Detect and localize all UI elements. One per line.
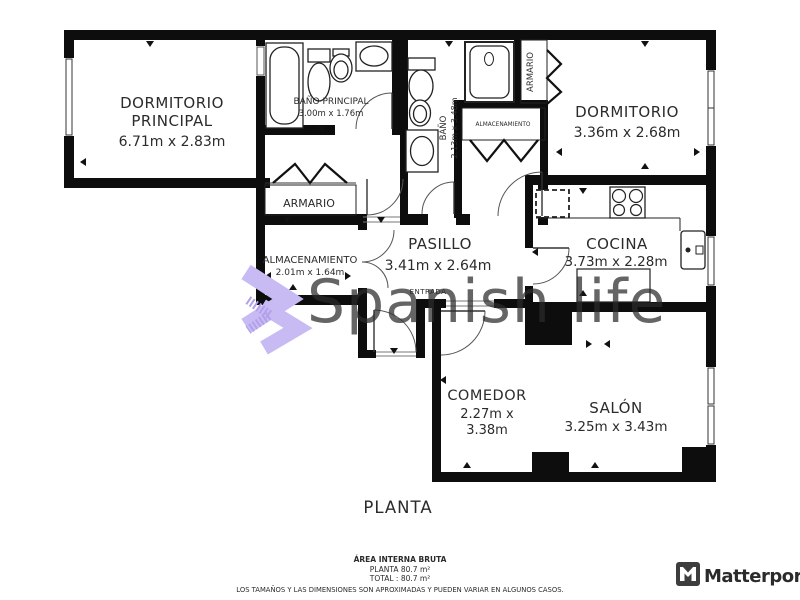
- label-comedor: COMEDOR: [447, 388, 526, 404]
- watermark-text: Spanish life: [307, 267, 666, 337]
- kitchen-sink: [681, 231, 705, 269]
- bidet-principal: [308, 49, 330, 101]
- label-armario: ARMARIO: [283, 197, 335, 210]
- toilet-principal: [330, 49, 352, 82]
- dims-dormitorio: 3.36m x 2.68m: [574, 125, 681, 141]
- window-dormitorio: [706, 70, 716, 146]
- footer: PLANTA ÁREA INTERNA BRUTA PLANTA 80.7 m²…: [236, 498, 563, 594]
- label-dormitorio: DORMITORIO: [575, 103, 679, 121]
- label-bano-principal: BAÑO PRINCIPAL: [293, 96, 368, 107]
- dims-cocina: 3.73m x 2.28m: [565, 254, 668, 270]
- brand: Matterport: [676, 562, 800, 587]
- footer-planta-area: PLANTA 80.7 m²: [370, 565, 431, 574]
- footer-area-heading: ÁREA INTERNA BRUTA: [354, 555, 447, 564]
- watermark: Spanish life: [246, 267, 666, 348]
- sink-bano: [406, 130, 438, 172]
- dims-bano: 2.13m x 3.48m: [450, 97, 459, 158]
- label-salon: SALÓN: [589, 398, 642, 417]
- label-cocina: COCINA: [586, 235, 648, 253]
- bathtub: [266, 43, 303, 128]
- watermark-logo-chevron-bottom: [262, 306, 298, 348]
- dims-almacenamiento: 2.01m x 1.64m: [276, 268, 345, 278]
- matterport-wordmark: Matterport: [704, 566, 800, 587]
- label-bano: BAÑO: [438, 115, 449, 140]
- label-entrada: ENTRADA: [410, 288, 447, 296]
- label-armario-superior: ARMARIO: [526, 52, 536, 92]
- window-cocina: [706, 236, 716, 286]
- dims-bano-principal: 3.00m x 1.76m: [299, 109, 364, 119]
- window-dormitorio-principal: [64, 58, 74, 136]
- stove: [610, 187, 645, 218]
- label-dormitorio-principal: DORMITORIO: [120, 94, 224, 112]
- floorplan-canvas: Spanish life DORMITORIO PRINCIPAL 6.71m …: [0, 0, 800, 600]
- shower: [465, 42, 514, 102]
- label-pasillo: PASILLO: [408, 235, 472, 253]
- floorplan-page: Spanish life DORMITORIO PRINCIPAL 6.71m …: [0, 0, 800, 600]
- label-dormitorio-principal-2: PRINCIPAL: [131, 112, 212, 130]
- label-almacenamiento-pequeno: ALMACENAMIENTO: [476, 122, 531, 128]
- bidet-bano: [410, 100, 431, 126]
- dims-comedor-2: 3.38m: [466, 423, 508, 438]
- sink-principal: [356, 42, 392, 71]
- label-almacenamiento: ALMACENAMIENTO: [263, 255, 358, 266]
- dims-pasillo: 3.41m x 2.64m: [385, 258, 492, 274]
- fridge-dashed: [536, 190, 569, 217]
- matterport-icon: [676, 562, 700, 586]
- toilet-bano: [408, 58, 435, 102]
- footer-disclaimer: LOS TAMAÑOS Y LAS DIMENSIONES SON APROXI…: [236, 585, 563, 594]
- footer-total-area: TOTAL : 80.7 m²: [369, 574, 430, 583]
- door-panel-dormitorio-principal: [256, 46, 265, 76]
- dims-dormitorio-principal: 6.71m x 2.83m: [119, 134, 226, 150]
- dims-comedor-1: 2.27m x: [460, 407, 514, 422]
- plan-title: PLANTA: [363, 498, 432, 517]
- dims-salon: 3.25m x 3.43m: [565, 419, 668, 435]
- window-salon: [706, 367, 716, 445]
- kitchen-counter: [536, 218, 680, 231]
